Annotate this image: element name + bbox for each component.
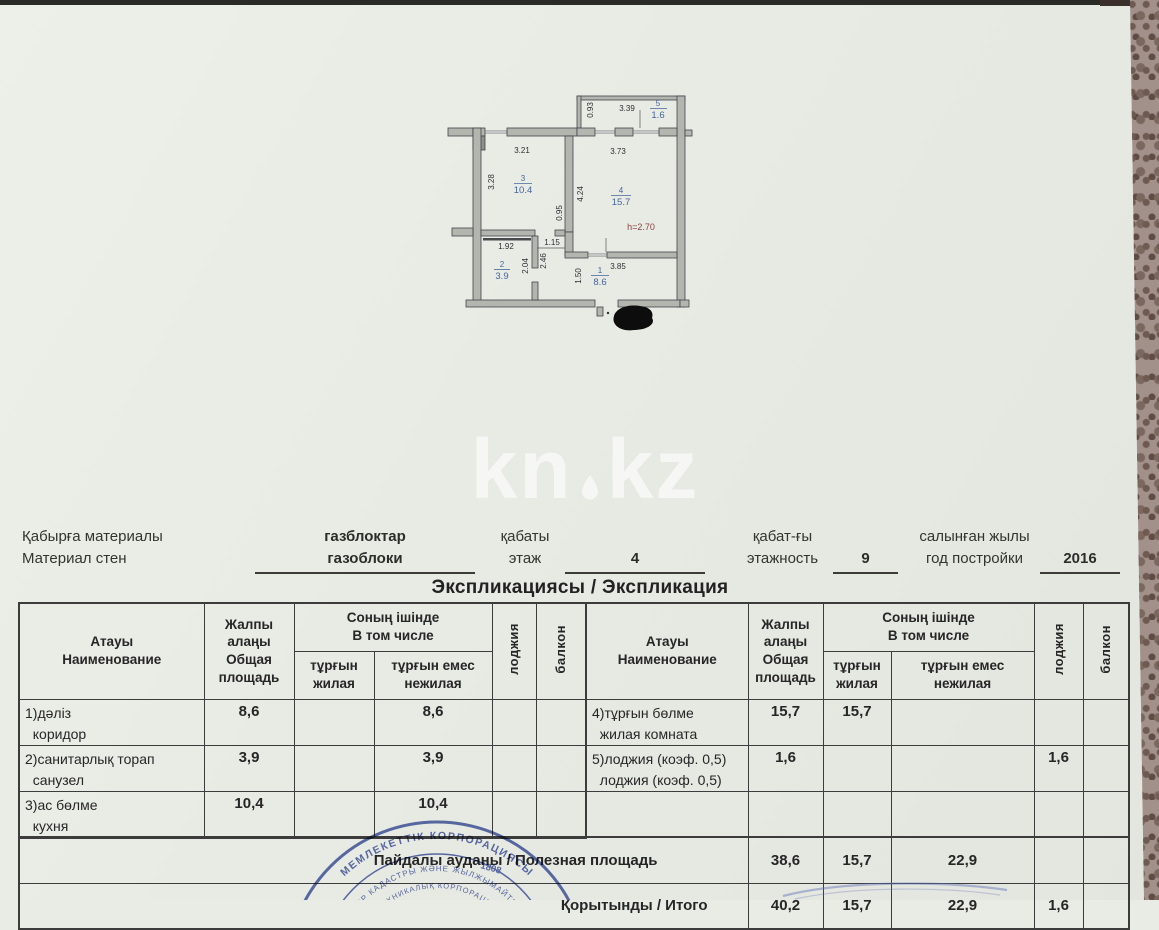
svg-text:1: 1 [598, 266, 603, 275]
floor-plan-walls [448, 96, 692, 316]
table-row-loggia: 5)лоджия (коэф. 0,5) лоджия (коэф. 0,5) … [586, 745, 1129, 791]
ink-blot [613, 305, 652, 330]
wall-material-label: Қабырға материалы Материал стен [22, 526, 163, 570]
dim-kitchen-depth: 3.28 [487, 174, 496, 190]
wall-material-value: газблоктар газоблоки [255, 526, 475, 574]
svg-text:2: 2 [500, 260, 505, 269]
signature-arcs [775, 876, 1015, 900]
cell-living: 15,7 [823, 699, 891, 745]
photo-top-edge [0, 0, 1159, 5]
svg-text:15.7: 15.7 [612, 197, 631, 208]
dim-room-width: 3.73 [610, 147, 626, 156]
cell-living [294, 699, 374, 745]
cell-loggia [492, 699, 536, 745]
dim-pass-width: 1.15 [544, 238, 560, 247]
col-header-balcony: балкон [536, 603, 586, 699]
svg-text:3.9: 3.9 [495, 271, 508, 282]
cell-loggia [1034, 837, 1083, 883]
col-header-including: Соның ішінде В том числе [823, 603, 1034, 651]
cell-total: 3,9 [204, 745, 294, 791]
table-row-living-room: 4)тұрғын бөлме жилая комната 15,7 15,7 [586, 699, 1129, 745]
table-row-corridor: 1)дәліз коридор 8,6 8,6 [19, 699, 586, 745]
room-label-loggia: 5 1.6 [650, 99, 667, 121]
cell-non-living: 8,6 [374, 699, 492, 745]
cell-non-living [891, 791, 1034, 837]
storeys-label: қабат-ғы этажность [730, 526, 835, 570]
room-label-hall: 1 8.6 [591, 266, 609, 288]
cell-total [748, 791, 823, 837]
cell-balcony [536, 699, 586, 745]
col-header-name: Атауы Наименование [19, 603, 204, 699]
dim-bath-depth: 2.04 [521, 258, 530, 274]
col-header-loggia: лоджия [1034, 603, 1083, 699]
kn-kz-watermark: kn kz [420, 408, 750, 504]
col-header-living: тұрғын жилая [294, 651, 374, 699]
col-header-total-area: Жалпы алаңы Общая площадь [204, 603, 294, 699]
col-header-total-area: Жалпы алаңы Общая площадь [748, 603, 823, 699]
cell-living [823, 791, 891, 837]
cell-balcony [1083, 837, 1129, 883]
room-label-bath: 2 3.9 [494, 260, 510, 282]
cell-loggia [1034, 791, 1083, 837]
cell-balcony [1083, 791, 1129, 837]
kn-logo-droplet-icon [580, 474, 600, 500]
storeys-value: 9 [833, 526, 898, 574]
explication-table-right: Атауы Наименование Жалпы алаңы Общая пло… [585, 602, 1130, 838]
dim-room-depth: 4.24 [576, 186, 585, 202]
svg-text:10.4: 10.4 [514, 185, 533, 196]
cell-non-living [891, 745, 1034, 791]
cell-total: 8,6 [204, 699, 294, 745]
dim-bath-width: 1.92 [498, 242, 514, 251]
floor-plan: 0.93 3.39 3.21 3.73 3.28 4.24 0.95 1.92 … [440, 80, 700, 335]
dim-wall-seg: 0.95 [555, 205, 564, 221]
col-header-including: Соның ішінде В том числе [294, 603, 492, 651]
svg-text:4: 4 [619, 186, 624, 195]
room-label-living: 4 15.7 [611, 186, 631, 208]
official-stamp: МЕМЛЕКЕТТІК КОРПОРАЦИЯСЫ ЖЕР КАДАСТРЫ ЖӘ… [262, 806, 612, 900]
col-header-non-living: тұрғын емес нежилая [891, 651, 1034, 699]
col-header-non-living: тұрғын емес нежилая [374, 651, 492, 699]
ceiling-height-label: h=2.70 [627, 222, 655, 232]
svg-text:1.6: 1.6 [651, 110, 664, 121]
cell-balcony [1083, 699, 1129, 745]
stamp-inner-arc-text: ТЕХНИКАЛЫҚ КОРПОРАЦИЯ [375, 881, 499, 900]
cell-non-living: 3,9 [374, 745, 492, 791]
watermark-part2: kz [607, 435, 700, 504]
svg-text:5: 5 [656, 99, 661, 108]
cell-name: 2)санитарлық торап санузел [19, 745, 204, 791]
cell-name: 4)тұрғын бөлме жилая комната [586, 699, 748, 745]
cell-total: 15,7 [748, 699, 823, 745]
floor-value: 4 [565, 526, 705, 574]
page-title: Экспликациясы / Экспликация [300, 577, 860, 599]
watermark-part1: kn [471, 435, 573, 504]
cell-balcony [536, 745, 586, 791]
cell-living [294, 745, 374, 791]
cell-living [823, 745, 891, 791]
explication-table-left: Атауы Наименование Жалпы алаңы Общая пло… [18, 602, 587, 839]
dim-bath-depth2: 2.46 [539, 253, 548, 269]
year-built-label: салынған жылы год постройки [912, 526, 1037, 570]
col-header-living: тұрғын жилая [823, 651, 891, 699]
dim-balcony-depth: 0.93 [586, 102, 595, 118]
cell-balcony [1083, 745, 1129, 791]
dim-hall-depth: 1.50 [574, 268, 583, 284]
col-header-balcony: балкон [1083, 603, 1129, 699]
cell-loggia: 1,6 [1034, 883, 1083, 929]
cell-loggia [1034, 699, 1083, 745]
col-header-name: Атауы Наименование [586, 603, 748, 699]
cell-name: 3)ас бөлме кухня [19, 791, 204, 838]
svg-text:3: 3 [521, 174, 526, 183]
table-row-empty [586, 791, 1129, 837]
dim-balcony-width: 3.39 [619, 104, 635, 113]
svg-text:8.6: 8.6 [593, 277, 606, 288]
dim-kitchen-width: 3.21 [514, 146, 530, 155]
cell-loggia: 1,6 [1034, 745, 1083, 791]
room-label-kitchen: 3 10.4 [514, 174, 533, 196]
cell-non-living [891, 699, 1034, 745]
cell-loggia [492, 745, 536, 791]
col-header-loggia: лоджия [492, 603, 536, 699]
table-row-bathroom: 2)санитарлық торап санузел 3,9 3,9 [19, 745, 586, 791]
year-built-value: 2016 [1040, 526, 1120, 574]
cell-name: 1)дәліз коридор [19, 699, 204, 745]
floor-label: қабаты этаж [480, 526, 570, 570]
cell-name: 5)лоджия (коэф. 0,5) лоджия (коэф. 0,5) [586, 745, 748, 791]
cell-balcony [1083, 883, 1129, 929]
cell-total: 1,6 [748, 745, 823, 791]
dim-hall-width: 3.85 [610, 262, 626, 271]
